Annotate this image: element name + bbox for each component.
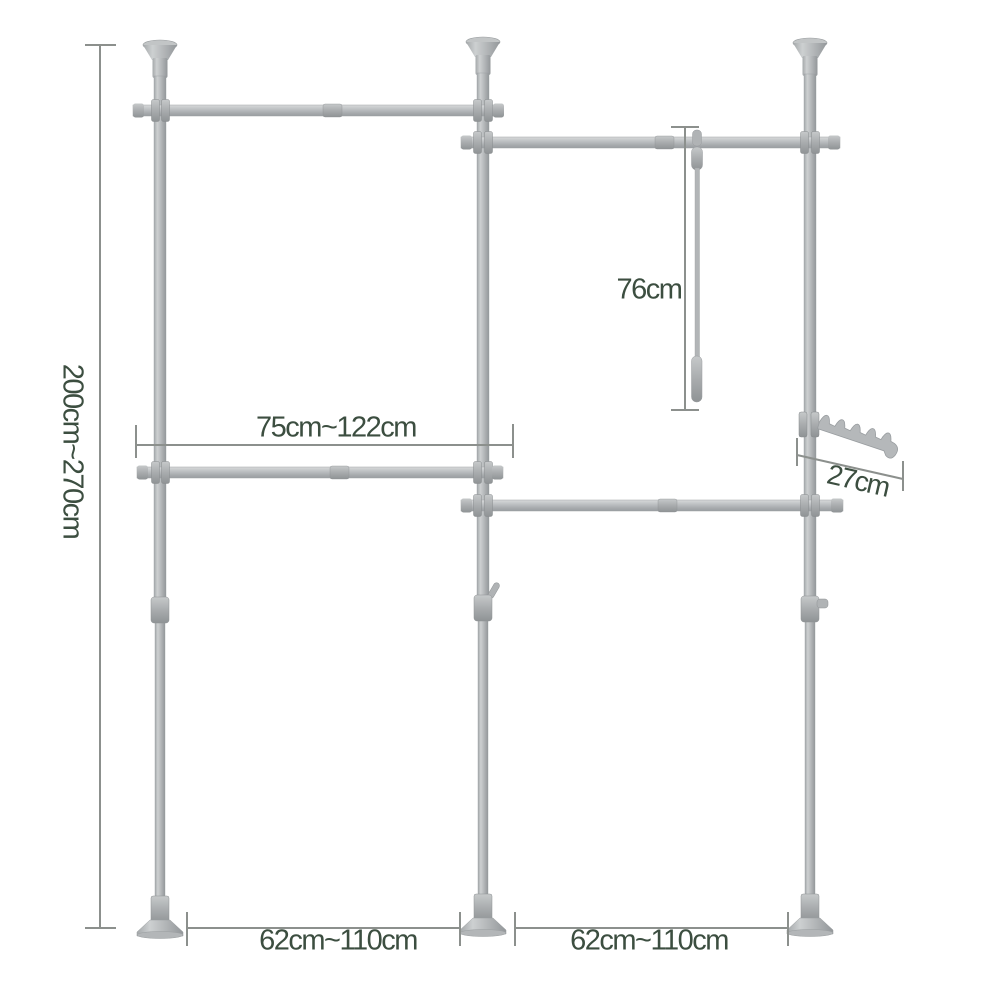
strap-hook-top bbox=[693, 130, 702, 146]
clamp-ring bbox=[152, 100, 160, 122]
left-pole-lower-tube bbox=[155, 600, 165, 900]
hook-arm-blade bbox=[815, 414, 901, 460]
clamp-ring bbox=[485, 495, 493, 517]
upper-rail-dimension-label: 75cm~122cm bbox=[256, 414, 416, 443]
clamp-ring bbox=[485, 462, 493, 484]
left-pole-upper-tube bbox=[154, 76, 166, 600]
product-dimension-diagram: 200cm~270cm 75cm~122cm 76cm 27cm 62cm~11… bbox=[0, 0, 1000, 1000]
left-pole bbox=[137, 40, 183, 939]
hook-arm-clamp-ring bbox=[799, 412, 807, 437]
clamp-ring bbox=[801, 132, 809, 154]
rail-end-cap bbox=[137, 466, 148, 480]
left-pole-neck bbox=[153, 58, 168, 78]
clamp-ring bbox=[812, 132, 820, 154]
right-ceiling-cap bbox=[793, 43, 827, 58]
middle-pole-neck bbox=[476, 55, 491, 75]
left-bay-dimension-label: 62cm~110cm bbox=[259, 927, 417, 956]
clamp-ring bbox=[485, 100, 493, 122]
right-pole-neck bbox=[803, 56, 818, 76]
rail-tube bbox=[461, 137, 840, 148]
hook-arm-clamp-ring bbox=[811, 412, 819, 437]
clamp-ring bbox=[474, 462, 482, 484]
telescopic-sleeve bbox=[330, 466, 349, 479]
rail-tube bbox=[133, 105, 503, 116]
telescopic-sleeve bbox=[323, 104, 342, 117]
height-dimension-label: 200cm~270cm bbox=[58, 364, 87, 539]
strap-band bbox=[695, 168, 700, 360]
clamp-ring bbox=[152, 462, 160, 484]
clamp-ring bbox=[474, 495, 482, 517]
rail-end-cap bbox=[492, 466, 503, 480]
clamp-ring bbox=[162, 100, 170, 122]
right-adjuster-knob-icon bbox=[817, 599, 828, 608]
clamp-ring bbox=[162, 462, 170, 484]
clamp-ring bbox=[474, 100, 482, 122]
right-floor-foot-base bbox=[787, 930, 833, 937]
rail-tube bbox=[461, 500, 843, 511]
height-dimension-line bbox=[85, 45, 116, 928]
middle-pole bbox=[460, 37, 506, 937]
middle-pole-adjuster-collar bbox=[474, 595, 492, 621]
left-pole-adjuster-collar bbox=[151, 597, 169, 623]
middle-pole-lower-tube bbox=[478, 597, 488, 898]
right-pole-adjuster-collar bbox=[801, 596, 819, 622]
clamp-ring bbox=[801, 495, 809, 517]
strap-dimension-label: 76cm bbox=[617, 276, 682, 305]
telescopic-sleeve bbox=[658, 499, 677, 512]
upper-left-rail bbox=[133, 100, 504, 122]
left-ceiling-cap bbox=[143, 45, 177, 60]
dimension-lines bbox=[85, 45, 903, 946]
left-floor-foot-base bbox=[137, 932, 183, 939]
clamp-ring bbox=[485, 132, 493, 154]
middle-floor-foot-base bbox=[460, 930, 506, 937]
rack-illustration bbox=[0, 0, 1000, 1000]
strap-tip bbox=[692, 356, 703, 402]
rail-end-cap bbox=[831, 499, 843, 513]
upper-right-rail bbox=[461, 132, 840, 154]
rail-end-cap bbox=[828, 136, 840, 150]
rail-end-cap bbox=[493, 104, 504, 118]
right-bay-dimension-label: 62cm~110cm bbox=[570, 927, 728, 956]
right-pole-lower-tube bbox=[805, 598, 815, 898]
rail-end-cap bbox=[461, 136, 472, 150]
lower-left-rail bbox=[137, 462, 503, 484]
rail-tube bbox=[137, 467, 503, 478]
rail-end-cap bbox=[133, 104, 144, 118]
strap-hook-body bbox=[692, 147, 703, 170]
hanging-strap bbox=[692, 130, 703, 402]
clamp-ring bbox=[812, 495, 820, 517]
clamp-ring bbox=[474, 132, 482, 154]
rail-end-cap bbox=[461, 499, 472, 513]
middle-ceiling-cap bbox=[466, 42, 500, 57]
telescopic-sleeve bbox=[655, 136, 674, 149]
lower-right-rail bbox=[461, 495, 843, 517]
